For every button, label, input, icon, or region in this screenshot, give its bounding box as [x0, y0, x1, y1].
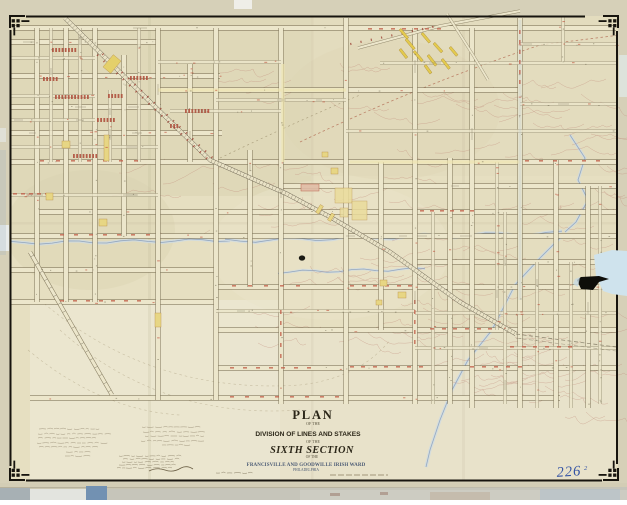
svg-text:OF THE: OF THE	[306, 421, 320, 426]
svg-text:PLAN: PLAN	[292, 408, 333, 422]
svg-text:OF THE: OF THE	[306, 455, 319, 459]
svg-text:OF THE: OF THE	[306, 439, 320, 444]
svg-text:226: 226	[556, 463, 582, 481]
svg-text:PHILADELPHIA: PHILADELPHIA	[293, 468, 319, 472]
svg-text:DIVISION OF LINES AND STAKES: DIVISION OF LINES AND STAKES	[255, 431, 361, 438]
